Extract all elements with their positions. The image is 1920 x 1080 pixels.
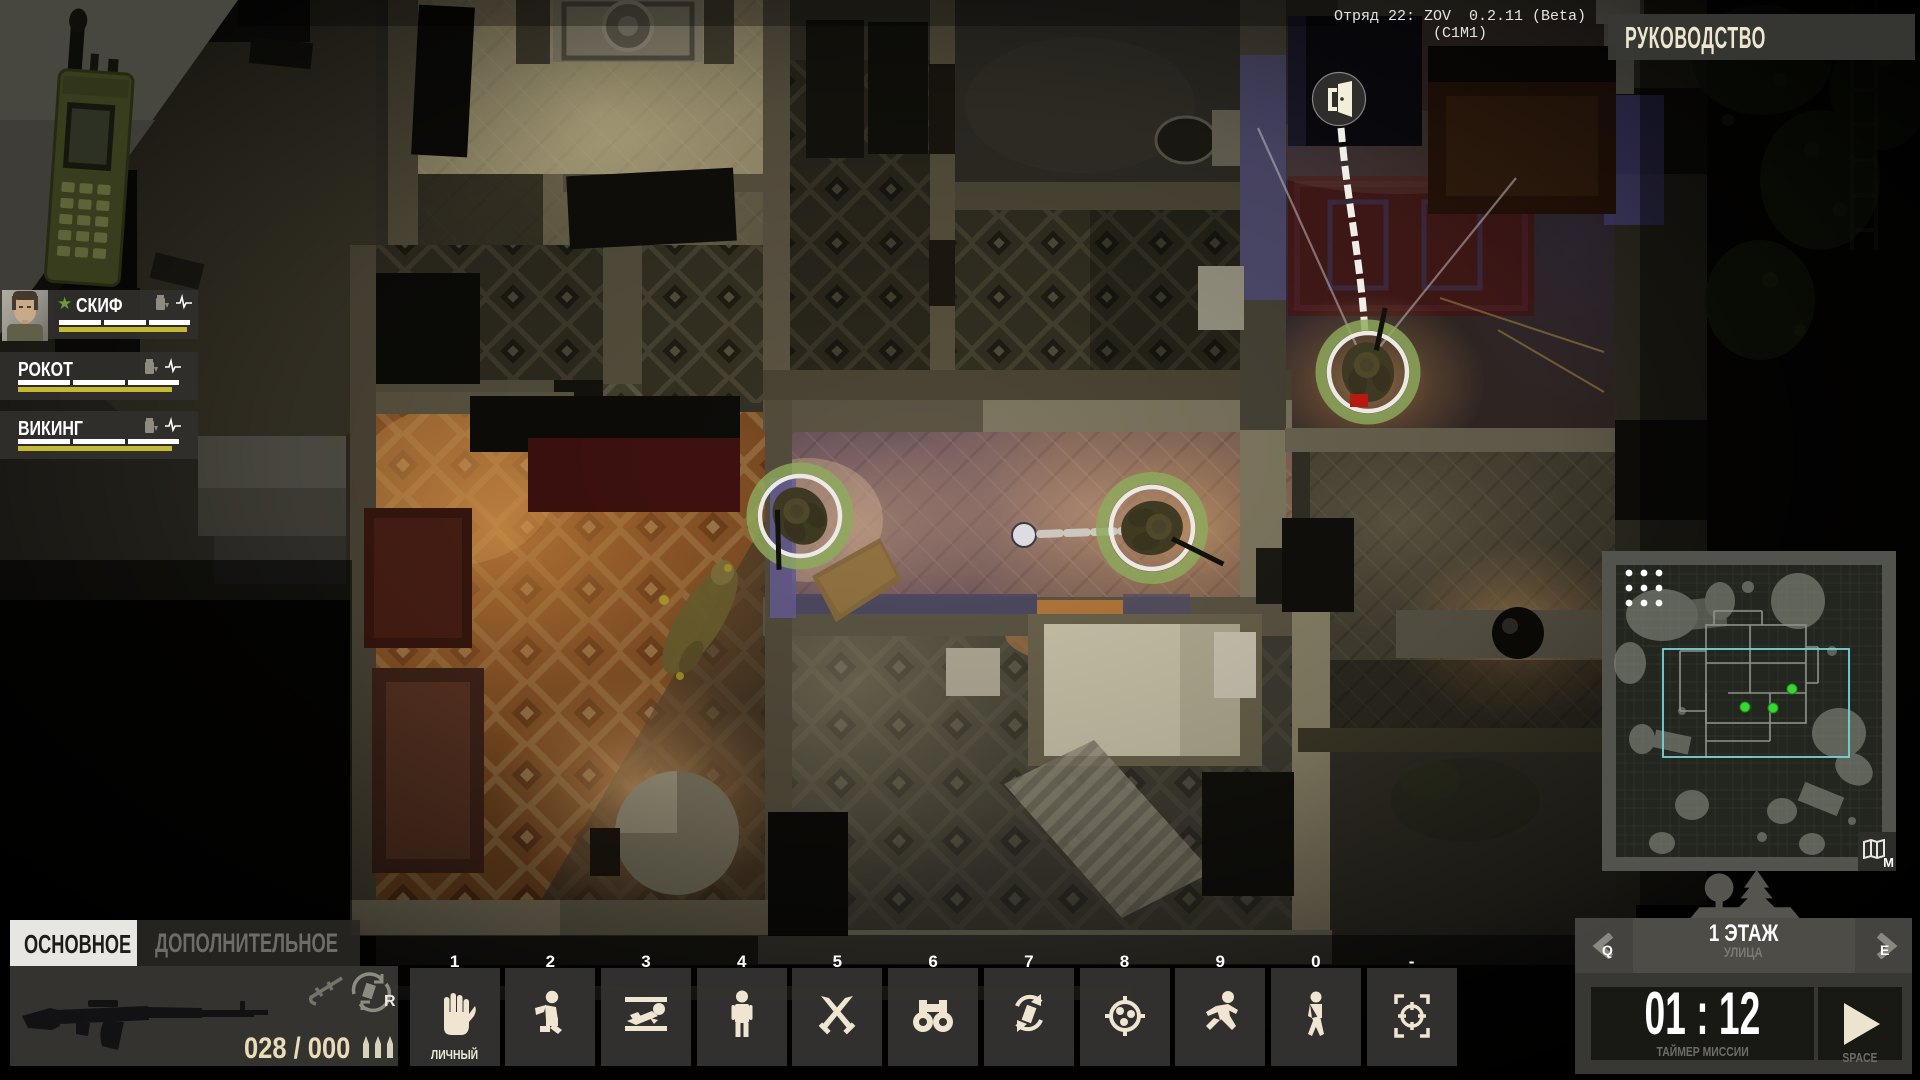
svg-text:R: R xyxy=(384,993,396,1010)
